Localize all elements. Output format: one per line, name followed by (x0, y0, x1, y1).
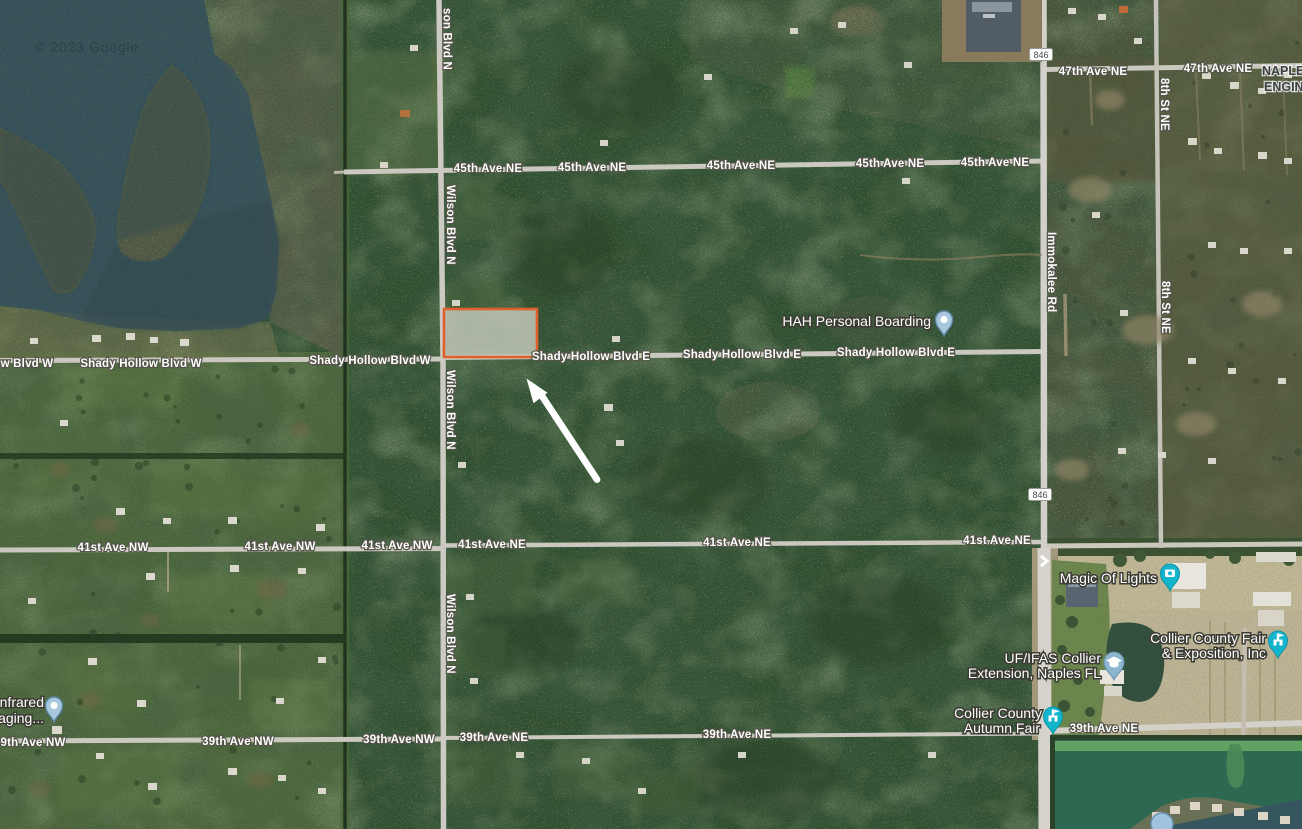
svg-text:aging...: aging... (0, 710, 44, 726)
svg-text:39th Ave NE: 39th Ave NE (1070, 723, 1139, 735)
svg-text:© 2023 Google: © 2023 Google (35, 40, 139, 55)
svg-text:8th St NE: 8th St NE (1158, 78, 1170, 131)
svg-text:Shady Hollow Blvd W: Shady Hollow Blvd W (80, 358, 201, 370)
svg-text:Wilson Blvd N: Wilson Blvd N (444, 370, 456, 450)
svg-text:39th Ave NW: 39th Ave NW (202, 736, 274, 748)
svg-text:nfrared: nfrared (0, 694, 44, 710)
svg-text:Shady Hollow Blvd W: Shady Hollow Blvd W (309, 355, 430, 367)
svg-text:Shady Hollow Blvd E: Shady Hollow Blvd E (837, 347, 955, 359)
svg-text:41st Ave NE: 41st Ave NE (458, 539, 526, 551)
svg-text:45th Ave NE: 45th Ave NE (961, 157, 1030, 169)
svg-text:8th St NE: 8th St NE (1159, 281, 1171, 334)
svg-text:39th Ave NE: 39th Ave NE (460, 732, 529, 744)
svg-text:47th Ave NE: 47th Ave NE (1059, 66, 1128, 78)
svg-text:Magic Of Lights: Magic Of Lights (1060, 570, 1157, 586)
svg-text:45th Ave NE: 45th Ave NE (558, 162, 627, 174)
svg-text:45th Ave NE: 45th Ave NE (707, 160, 776, 172)
svg-text:Collier County Fair: Collier County Fair (1150, 630, 1266, 646)
svg-text:846: 846 (1033, 50, 1048, 60)
svg-text:Collier County: Collier County (954, 705, 1042, 721)
svg-text:41st Ave NW: 41st Ave NW (244, 541, 315, 553)
svg-text:Immokalee Rd: Immokalee Rd (1045, 232, 1057, 312)
svg-text:Shady Hollow Blvd E: Shady Hollow Blvd E (683, 349, 801, 361)
svg-text:Autumn Fair: Autumn Fair (964, 720, 1041, 736)
svg-text:41st Ave NE: 41st Ave NE (703, 537, 771, 549)
svg-text:ENGINE: ENGINE (1264, 80, 1302, 94)
svg-text:Extension, Naples FL: Extension, Naples FL (968, 665, 1101, 681)
svg-text:45th Ave NE: 45th Ave NE (454, 163, 523, 175)
svg-text:Wilson Blvd N: Wilson Blvd N (444, 594, 456, 674)
svg-text:39th Ave NE: 39th Ave NE (703, 729, 772, 741)
svg-text:son Blvd N: son Blvd N (441, 8, 453, 70)
svg-text:NAPLES: NAPLES (1262, 64, 1302, 78)
svg-text:41st Ave NE: 41st Ave NE (963, 535, 1031, 547)
svg-text:47th Ave NE: 47th Ave NE (1184, 63, 1253, 75)
svg-text:UF/IFAS Collier: UF/IFAS Collier (1005, 650, 1102, 666)
svg-text:39th Ave NW: 39th Ave NW (363, 734, 435, 746)
svg-text:& Exposition, Inc: & Exposition, Inc (1162, 645, 1266, 661)
svg-text:w Blvd W: w Blvd W (0, 358, 53, 370)
svg-text:9th Ave NW: 9th Ave NW (0, 737, 65, 749)
svg-text:41st Ave NW: 41st Ave NW (361, 540, 432, 552)
svg-text:Wilson Blvd N: Wilson Blvd N (444, 185, 456, 265)
svg-text:HAH Personal Boarding: HAH Personal Boarding (782, 313, 931, 329)
svg-text:Shady Hollow Blvd E: Shady Hollow Blvd E (532, 351, 650, 363)
svg-text:846: 846 (1032, 490, 1047, 500)
svg-text:41st Ave NW: 41st Ave NW (77, 542, 148, 554)
svg-text:45th Ave NE: 45th Ave NE (856, 158, 925, 170)
